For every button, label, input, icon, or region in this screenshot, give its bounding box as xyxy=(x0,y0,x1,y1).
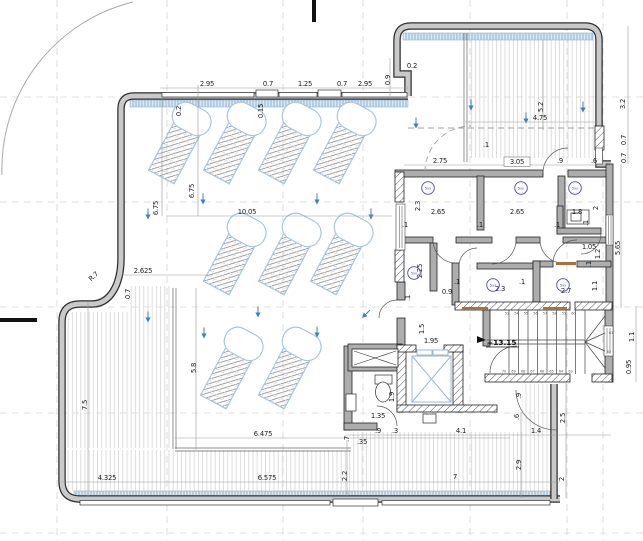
stair-tread-number: 58 xyxy=(552,312,556,316)
dimension-label: 0.2 xyxy=(407,62,417,70)
room-tag-label: 5xx xyxy=(411,272,417,276)
stair-tread-number: 61 xyxy=(609,331,613,335)
dimension-label: 5.8 xyxy=(190,363,198,373)
dimension-label: R.7 xyxy=(87,270,100,283)
dimension-label: 6.475 xyxy=(254,430,272,438)
dimension-label: 2.3 xyxy=(495,285,505,293)
dimension-label: .9 xyxy=(515,393,523,399)
dimension-label: .1 xyxy=(554,221,560,229)
dimension-label: 0.7 xyxy=(620,153,628,163)
dimension-label: 2.75 xyxy=(433,157,447,165)
vent-shaft xyxy=(352,349,398,367)
dimension-label: 2.65 xyxy=(431,208,445,216)
stair-tread-number: 57 xyxy=(543,312,547,316)
stair-tread-number: 68 xyxy=(521,370,525,374)
dimension-label: .6 xyxy=(591,157,597,165)
dimension-label: 10.05 xyxy=(238,208,256,216)
dimension-label: 1.35 xyxy=(371,412,385,420)
stair-tread-number: 70 xyxy=(502,370,506,374)
dimension-label: 1.95 xyxy=(424,337,438,345)
dimension-label: .1 xyxy=(519,278,525,286)
room-tag-label: 5xx xyxy=(490,284,496,288)
dimension-label: 2.5 xyxy=(559,413,567,423)
room-tag-label: 5xx xyxy=(572,187,578,191)
dimension-label: .1 xyxy=(483,141,489,149)
windows xyxy=(396,148,613,356)
dimension-label: 2 xyxy=(592,206,600,210)
dimension-label: 2.625 xyxy=(134,267,152,275)
stair-tread-number: 60 xyxy=(571,312,575,316)
dimension-label: 1.25 xyxy=(298,80,312,88)
dimension-label: 3.05 xyxy=(510,158,524,166)
dimension-label: 6.75 xyxy=(188,184,196,198)
level-marker-label: +13.15 xyxy=(487,338,517,347)
stair-tread-number: 67 xyxy=(530,370,534,374)
dimension-label: 2.3 xyxy=(414,201,422,211)
dimension-label: .1 xyxy=(404,295,412,301)
stair-tread-number: 59 xyxy=(562,312,566,316)
dimension-label: 4.325 xyxy=(98,474,116,482)
elevator xyxy=(412,350,451,402)
dimension-label: 2.95 xyxy=(200,80,214,88)
dimension-label: 7 xyxy=(453,473,457,481)
dimension-label: .35 xyxy=(357,438,367,446)
dimension-label: .1 xyxy=(402,221,408,229)
dimension-label: 0.9 xyxy=(384,75,392,85)
dimension-label: 0.9 xyxy=(442,288,452,296)
sheet-mark-top xyxy=(312,0,316,22)
stair-tread-number: 64 xyxy=(559,370,563,374)
dimension-label: 7.5 xyxy=(81,400,89,410)
stair-tread-number: 62 xyxy=(607,350,611,354)
dimension-label: 0.7 xyxy=(263,80,273,88)
stair-tread-number: 54 xyxy=(514,312,518,316)
dimension-label: .3 xyxy=(392,427,398,435)
dimension-label: .1 xyxy=(582,220,590,226)
dimension-label: 1.2 xyxy=(594,249,602,259)
dimension-label: .1 xyxy=(454,278,460,286)
dimension-label: .7 xyxy=(343,436,351,442)
dimension-label: .6 xyxy=(513,414,521,420)
dimension-label: 4.1 xyxy=(456,427,466,435)
dimension-label: 1.1 xyxy=(628,332,636,342)
dimension-label: 1.4 xyxy=(531,427,541,435)
dimension-label: 4.75 xyxy=(533,114,547,122)
room-tag-label: 5xx xyxy=(518,187,524,191)
room-tag-label: 5xx xyxy=(425,187,431,191)
dimension-label: 5.2 xyxy=(537,102,545,112)
stair-tread-number: 65 xyxy=(549,370,553,374)
dimension-label: 2.2 xyxy=(341,471,349,481)
stair-tread-number: 55 xyxy=(524,312,528,316)
sink xyxy=(346,394,356,411)
plan-drawing: 2.950.71.250.72.950.90.20.20.155.24.753.… xyxy=(0,0,643,541)
sheet-mark-left xyxy=(0,318,37,322)
dimension-label: 0.7 xyxy=(337,80,347,88)
stair-tread-number: 69 xyxy=(511,370,515,374)
stair-tread-number: 53 xyxy=(505,312,509,316)
dimension-label: 1.5 xyxy=(418,324,426,334)
dimension-label: 6.575 xyxy=(258,474,276,482)
dimension-label: 2.9 xyxy=(515,460,523,470)
dimension-label: 2.65 xyxy=(510,208,524,216)
dimension-label: 0.15 xyxy=(257,104,265,118)
dimension-label: 6.75 xyxy=(152,201,160,215)
dimension-label: 3.2 xyxy=(619,99,627,109)
dimension-label: .1 xyxy=(477,221,483,229)
dimension-label: 0.7 xyxy=(124,289,132,299)
stair-tread-number: 63 xyxy=(568,370,572,374)
dimension-label: .9 xyxy=(557,157,563,165)
dimension-label: .9 xyxy=(375,427,381,435)
dimension-label: .1 xyxy=(585,261,593,267)
dimension-label: 2 xyxy=(558,477,566,481)
dimension-label: 5.65 xyxy=(614,241,622,255)
dimension-label: 1.9 xyxy=(388,392,396,402)
stair-tread-number: 66 xyxy=(540,370,544,374)
dimension-label: 0.95 xyxy=(625,360,633,374)
dimension-label: 1.8 xyxy=(572,208,582,216)
dimension-label: 0.2 xyxy=(175,106,183,116)
dimension-label: 2.95 xyxy=(358,80,372,88)
dimension-label: 1.1 xyxy=(591,281,599,291)
dimension-label: 0.7 xyxy=(620,135,628,145)
panel-box xyxy=(423,414,436,423)
stair-tread-number: 56 xyxy=(533,312,537,316)
room-tag-label: 5xx xyxy=(560,284,566,288)
floor-plan-canvas: 2.950.71.250.72.950.90.20.20.155.24.753.… xyxy=(0,0,643,541)
